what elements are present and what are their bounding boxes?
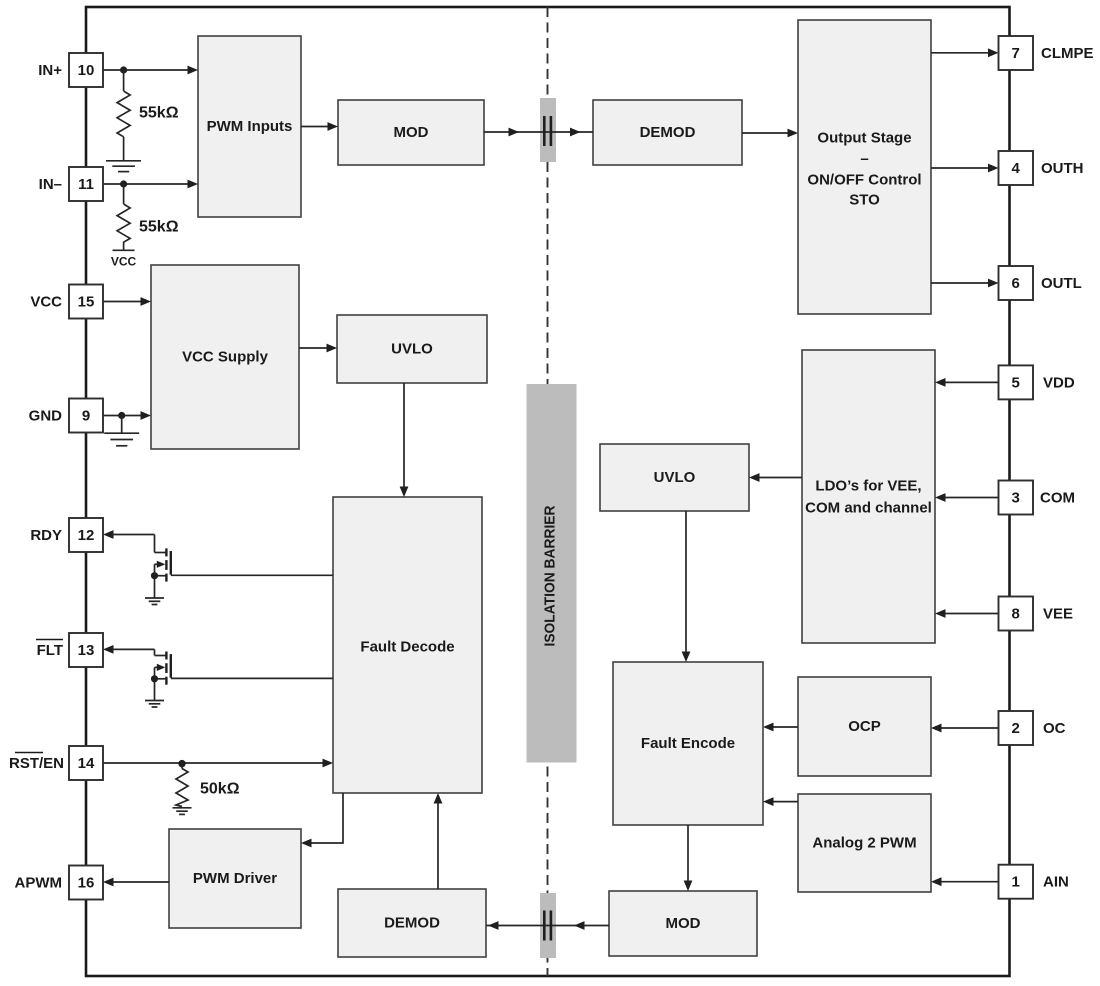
svg-text:6: 6 bbox=[1012, 275, 1020, 292]
svg-text:GND: GND bbox=[29, 408, 63, 425]
svg-text:IN–: IN– bbox=[39, 176, 62, 193]
svg-text:11: 11 bbox=[78, 176, 94, 193]
svg-text:Output Stage: Output Stage bbox=[817, 130, 911, 147]
svg-text:–: – bbox=[860, 151, 868, 168]
svg-text:2: 2 bbox=[1012, 720, 1020, 737]
svg-text:VCC Supply: VCC Supply bbox=[182, 349, 268, 366]
svg-text:55kΩ: 55kΩ bbox=[139, 105, 179, 122]
svg-text:OC: OC bbox=[1043, 720, 1066, 737]
svg-text:10: 10 bbox=[78, 62, 95, 79]
svg-text:MOD: MOD bbox=[394, 124, 429, 141]
svg-text:MOD: MOD bbox=[666, 915, 701, 932]
svg-text:UVLO: UVLO bbox=[391, 341, 433, 358]
svg-text:DEMOD: DEMOD bbox=[640, 124, 696, 141]
svg-text:14: 14 bbox=[78, 755, 95, 772]
svg-text:LDO’s for VEE,: LDO’s for VEE, bbox=[815, 478, 921, 495]
svg-text:CLMPE: CLMPE bbox=[1041, 45, 1094, 62]
svg-text:50kΩ: 50kΩ bbox=[200, 781, 240, 798]
svg-text:Fault Encode: Fault Encode bbox=[641, 735, 735, 752]
svg-text:PWM Driver: PWM Driver bbox=[193, 870, 277, 887]
svg-text:16: 16 bbox=[78, 875, 95, 892]
svg-text:ON/OFF Control: ON/OFF Control bbox=[807, 172, 921, 189]
svg-text:COM and channel: COM and channel bbox=[805, 500, 932, 517]
svg-text:COM: COM bbox=[1040, 490, 1075, 507]
svg-text:5: 5 bbox=[1012, 374, 1020, 391]
svg-text:RST/EN: RST/EN bbox=[9, 755, 64, 772]
svg-text:7: 7 bbox=[1012, 45, 1020, 62]
svg-text:STO: STO bbox=[849, 192, 880, 209]
svg-text:VEE: VEE bbox=[1043, 606, 1073, 623]
svg-text:RDY: RDY bbox=[30, 527, 62, 544]
svg-text:OUTL: OUTL bbox=[1041, 275, 1082, 292]
svg-text:VCC: VCC bbox=[30, 294, 62, 311]
svg-text:Fault Decode: Fault Decode bbox=[360, 639, 454, 656]
svg-text:1: 1 bbox=[1012, 874, 1020, 891]
svg-text:APWM: APWM bbox=[15, 875, 63, 892]
svg-text:VDD: VDD bbox=[1043, 374, 1075, 391]
svg-text:ISOLATION BARRIER: ISOLATION BARRIER bbox=[542, 505, 559, 646]
svg-text:OCP: OCP bbox=[848, 718, 881, 735]
svg-text:FLT: FLT bbox=[37, 642, 63, 659]
svg-text:15: 15 bbox=[78, 294, 95, 311]
svg-text:9: 9 bbox=[82, 408, 90, 425]
svg-text:DEMOD: DEMOD bbox=[384, 915, 440, 932]
svg-text:3: 3 bbox=[1012, 490, 1020, 507]
svg-text:12: 12 bbox=[78, 527, 95, 544]
svg-text:PWM Inputs: PWM Inputs bbox=[207, 118, 293, 135]
svg-text:8: 8 bbox=[1012, 606, 1020, 623]
svg-text:UVLO: UVLO bbox=[654, 469, 696, 486]
svg-text:4: 4 bbox=[1012, 160, 1021, 177]
svg-text:55kΩ: 55kΩ bbox=[139, 219, 179, 236]
svg-text:AIN: AIN bbox=[1043, 874, 1069, 891]
svg-text:Analog 2 PWM: Analog 2 PWM bbox=[812, 835, 916, 852]
svg-text:VCC: VCC bbox=[111, 255, 137, 269]
svg-text:OUTH: OUTH bbox=[1041, 160, 1084, 177]
svg-text:13: 13 bbox=[78, 642, 95, 659]
svg-text:IN+: IN+ bbox=[38, 62, 62, 79]
